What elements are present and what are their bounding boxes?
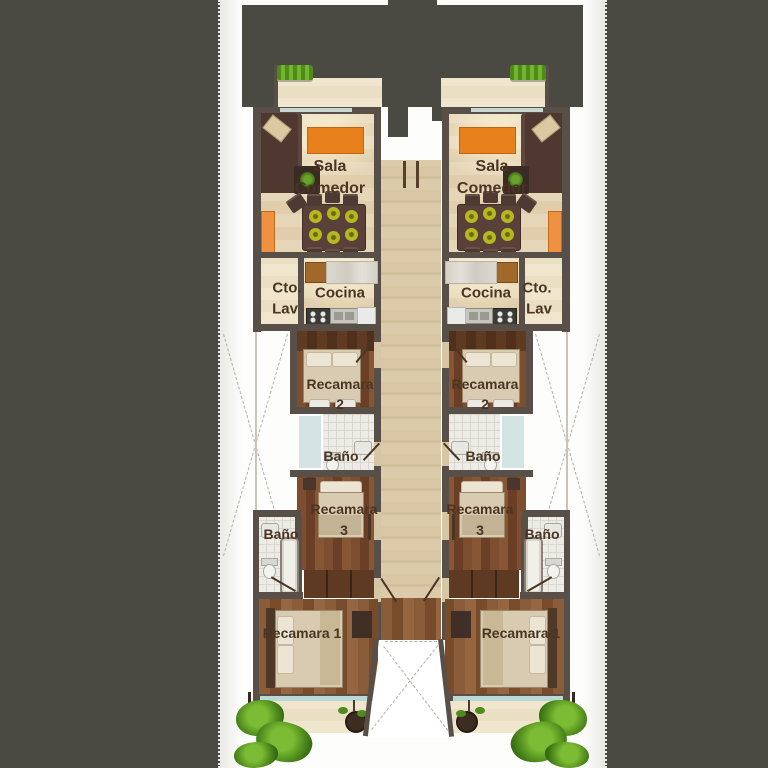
pillow-icon	[465, 352, 491, 367]
door-leaf	[452, 514, 455, 540]
rug-icon	[459, 127, 516, 154]
pillow-icon	[491, 352, 517, 367]
wall-rec2-left	[526, 331, 533, 414]
balcony-top-floor	[441, 78, 545, 110]
facade-line	[566, 332, 568, 512]
label-lav: Lav	[272, 302, 298, 317]
label-bano-exterior: Baño	[525, 527, 560, 541]
pillow-icon	[529, 645, 546, 674]
stair-dash-line	[385, 641, 437, 642]
leaf-icon	[456, 710, 466, 717]
label-comedor: Comedor	[457, 181, 527, 197]
headboard-icon	[548, 608, 557, 688]
label-comedor: Comedor	[295, 181, 365, 197]
label-bano-interior: Baño	[324, 449, 359, 463]
wall-outer-upper	[562, 107, 570, 332]
label-recamara1: Recamara 1	[482, 626, 561, 640]
label-cto: Cto.	[272, 281, 301, 296]
wall-step	[522, 510, 570, 517]
label-bano-exterior: Baño	[264, 527, 299, 541]
wall-corridor-side	[442, 108, 449, 640]
wall-bano-rec1	[520, 592, 570, 599]
closet-strip	[449, 570, 519, 598]
label-cocina: Cocina	[315, 286, 365, 301]
nightstand-icon	[507, 478, 520, 490]
corridor	[381, 108, 441, 598]
entry-door-leaf	[416, 161, 419, 188]
vestibule-floor	[381, 598, 441, 640]
leaf-icon	[475, 707, 485, 714]
kitchen-counter-icon	[445, 261, 497, 284]
plate-icon	[483, 231, 496, 244]
label-bano-interior: Baño	[466, 449, 501, 463]
entry-step	[432, 107, 442, 121]
plant-icon	[545, 742, 589, 768]
label-recamara3-num: 3	[476, 523, 484, 537]
console-icon	[548, 211, 562, 255]
plate-icon	[465, 210, 478, 223]
label-sala: Sala	[476, 159, 509, 175]
entry-door-leaf	[403, 161, 406, 188]
stem-icon	[468, 700, 470, 712]
sliding-door-glass	[471, 108, 543, 112]
plate-icon	[501, 210, 514, 223]
label-lav: Lav	[526, 302, 552, 317]
plate-icon	[465, 228, 478, 241]
label-recamara2: Recamara	[307, 377, 374, 391]
label-recamara3-num: 3	[340, 523, 348, 537]
door-gap	[442, 342, 449, 368]
entry-stair-mass	[388, 107, 408, 137]
planter-icon	[510, 65, 546, 82]
label-cto: Cto.	[522, 281, 551, 296]
shower-icon	[500, 414, 526, 470]
label-recamara2-num: 2	[481, 397, 489, 411]
label-recamara2: Recamara	[452, 377, 519, 391]
label-sala: Sala	[314, 159, 347, 175]
label-recamara1: Recamara 1	[263, 626, 342, 640]
plate-icon	[483, 207, 496, 220]
plate-icon	[501, 228, 514, 241]
headboard-strip	[449, 331, 526, 351]
wall-outer-lower	[564, 510, 570, 701]
label-recamara2-num: 2	[336, 397, 344, 411]
floor-plan-canvas: Sala Comedor Cto. Lav Cocina Recamara 2 …	[0, 0, 768, 768]
label-cocina: Cocina	[461, 286, 511, 301]
wall-cocina-bottom	[442, 324, 570, 331]
bed-throw-icon	[483, 611, 503, 685]
label-recamara3: Recamara	[311, 502, 378, 516]
label-recamara3: Recamara	[447, 502, 514, 516]
dresser-icon	[451, 611, 471, 638]
wall-bano-rec3	[442, 470, 533, 477]
kitchen-cabinet-icon	[495, 262, 518, 283]
sink-icon	[465, 308, 493, 324]
